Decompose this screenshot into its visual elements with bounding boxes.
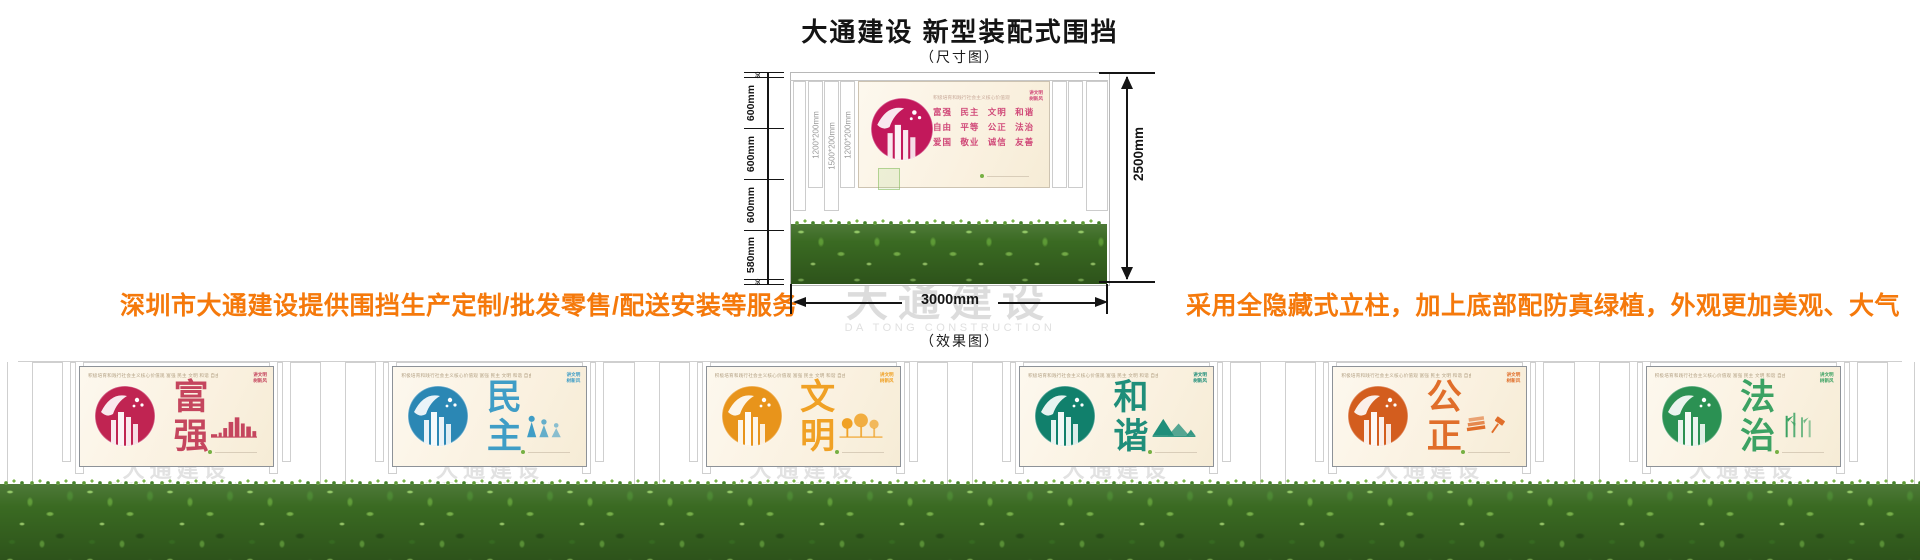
civility-badge: 讲文明树新风 — [253, 372, 267, 384]
fence-post — [1068, 81, 1083, 188]
dim-segment: 600mm — [744, 179, 784, 230]
civility-badge: 讲文明树新风 — [880, 372, 894, 384]
panel-word: 法治 — [1737, 378, 1779, 456]
dim-segment: 60 — [744, 279, 784, 284]
fence-post — [1574, 362, 1600, 489]
fence-post — [1849, 362, 1858, 462]
arrow-left-icon — [793, 297, 806, 307]
panel-sign-fazhi: 积极培育和践行社会主义核心价值观 富强 民主 文明 和谐 自由 平等 公正 法治… — [1646, 366, 1841, 467]
dimension-caption: （尺寸图） — [0, 47, 1920, 67]
papercut-circle-icon — [93, 384, 157, 448]
fence-post: 1200*200mm — [808, 81, 823, 188]
fence-post — [1887, 362, 1915, 490]
fence-post: 1200*200mm — [840, 81, 855, 188]
fence-post — [62, 362, 71, 462]
panel-sign-gongzheng: 积极培育和践行社会主义核心价值观 富强 民主 文明 和谐 自由 平等 公正 法治… — [1332, 366, 1527, 467]
footer-dot-row — [521, 450, 570, 454]
green-dot-icon — [521, 450, 525, 454]
fence-post: 1500*200mm — [824, 81, 839, 211]
greenery-hedge-diagram — [791, 224, 1107, 284]
height-dimension-label: 2500mm — [1131, 127, 1146, 181]
civility-badge: 讲文明树新风 — [1820, 372, 1834, 384]
page-title: 大通建设 新型装配式围挡 — [0, 12, 1920, 49]
values-tagline: 积极培育和践行社会主义核心价值观 — [933, 94, 1041, 101]
papercut-circle-icon — [1346, 384, 1410, 448]
fence-post — [375, 362, 384, 462]
footer-dot-row — [1148, 450, 1197, 454]
dim-end-bar — [1099, 281, 1155, 283]
fence-post — [634, 362, 660, 489]
green-dot-icon — [835, 450, 839, 454]
dim-bracket — [790, 284, 792, 314]
fence-post — [1222, 362, 1231, 462]
dim-segment: 600mm — [744, 77, 784, 128]
panel-word: 和谐 — [1110, 378, 1152, 456]
fence-post — [689, 362, 698, 462]
fence-column — [793, 81, 806, 211]
panel-word: 文明 — [797, 378, 839, 456]
skyline-motif-icon — [211, 410, 257, 440]
green-dot-icon — [1775, 450, 1779, 454]
green-dot-icon — [1148, 450, 1152, 454]
fence-post — [595, 362, 604, 462]
fence-post — [1052, 81, 1067, 188]
footer-dot-row — [1461, 450, 1510, 454]
panel-sign-wenming: 积极培育和践行社会主义核心价值观 富强 民主 文明 和谐 自由 平等 公正 法治… — [706, 366, 901, 467]
panel-word: 公正 — [1423, 378, 1465, 456]
footer-dot-row — [208, 450, 257, 454]
right-feature-note: 采用全隐藏式立柱，加上底部配防真绿植，外观更加美观、大气 — [1186, 286, 1900, 322]
fence-top-cap — [790, 72, 1108, 81]
fence-post — [1629, 362, 1638, 462]
dim-segment: 580mm — [744, 230, 784, 279]
values-line: 自由 平等 公正 法治 — [933, 120, 1034, 135]
dim-end-bar — [1099, 72, 1155, 74]
papercut-circle-icon — [1033, 384, 1097, 448]
fence-post — [1260, 362, 1286, 489]
green-dot-icon — [208, 450, 212, 454]
panel-sign-fuqiang: 积极培育和践行社会主义核心价值观 富强 民主 文明 和谐 自由 平等 公正 法治… — [79, 366, 274, 467]
fence-column — [1086, 81, 1108, 211]
trees-motif-icon — [838, 410, 884, 440]
poster-page: 大通建设 新型装配式围挡 （尺寸图） 深圳市大通建设提供围挡生产定制/批发零售/… — [0, 0, 1920, 560]
people-motif-icon — [524, 410, 570, 440]
green-dot-icon — [980, 174, 984, 178]
arrow-right-icon — [1095, 297, 1108, 307]
bottom-dimension-line — [998, 302, 1101, 304]
papercut-circle-icon — [406, 384, 470, 448]
green-dot-icon — [1461, 450, 1465, 454]
footer-dot-row — [835, 450, 884, 454]
left-dimension-scale: 60 600mm 600mm 600mm 580mm 60 — [744, 72, 784, 285]
papercut-circle-icon — [720, 384, 784, 448]
right-dimension-line — [1126, 77, 1128, 279]
civility-badge: 讲文明树新风 — [1193, 372, 1207, 384]
datong-logo-stamp — [878, 168, 900, 190]
civility-badge: 讲文明树新风 — [1029, 90, 1043, 102]
fence-post — [1002, 362, 1011, 462]
width-dimension-label: 3000mm — [900, 292, 1000, 308]
left-service-note: 深圳市大通建设提供围挡生产定制/批发零售/配送安装等服务 — [120, 286, 798, 322]
panel-word: 富强 — [170, 378, 212, 456]
panel-word: 民主 — [483, 378, 525, 456]
effect-caption: （效果图） — [0, 331, 1920, 351]
papercut-circle-icon — [1660, 384, 1724, 448]
mountains-motif-icon — [1151, 410, 1197, 440]
arrow-down-icon — [1121, 267, 1133, 280]
footer-dot-row — [1775, 450, 1824, 454]
fence-post — [282, 362, 291, 462]
fence-post — [7, 362, 33, 489]
post-size-label: 1500*200mm — [827, 122, 836, 170]
civility-badge: 讲文明树新风 — [567, 372, 581, 384]
fence-post — [909, 362, 918, 462]
panel-sign-minzhu: 积极培育和践行社会主义核心价值观 富强 民主 文明 和谐 自由 平等 公正 法治… — [392, 366, 587, 467]
books-gavel-motif-icon — [1464, 410, 1510, 440]
footer-dot-row — [980, 174, 1029, 178]
values-line: 富强 民主 文明 和谐 — [933, 105, 1034, 120]
fence-post — [1315, 362, 1324, 462]
dim-segment: 600mm — [744, 128, 784, 179]
post-size-label: 1200*200mm — [843, 111, 852, 159]
arrow-up-icon — [1121, 76, 1133, 89]
fence-post — [320, 362, 346, 489]
post-size-label: 1200*200mm — [811, 111, 820, 159]
fence-post — [1535, 362, 1544, 462]
bottom-dimension-line — [799, 302, 902, 304]
values-line: 爱国 敬业 诚信 友善 — [933, 135, 1034, 150]
civility-badge: 讲文明树新风 — [1507, 372, 1521, 384]
greenery-hedge — [0, 484, 1920, 560]
fence-post — [947, 362, 973, 489]
papercut-circle-icon — [869, 96, 935, 162]
values-lines: 富强 民主 文明 和谐 自由 平等 公正 法治 爱国 敬业 诚信 友善 — [933, 105, 1034, 150]
bamboo-motif-icon — [1778, 410, 1824, 440]
panel-sign-hexie: 积极培育和践行社会主义核心价值观 富强 民主 文明 和谐 自由 平等 公正 法治… — [1019, 366, 1214, 467]
